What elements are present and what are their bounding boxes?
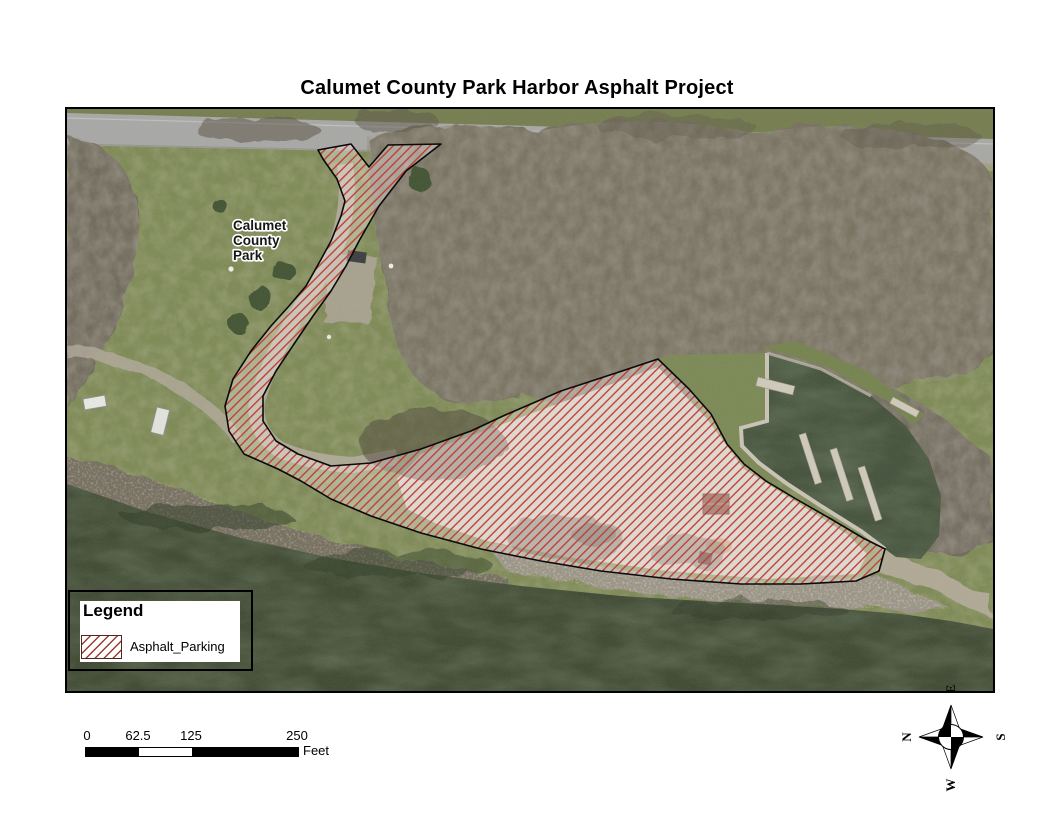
legend-item-label: Asphalt_Parking bbox=[130, 639, 225, 654]
scale-tick-125: 125 bbox=[180, 728, 202, 743]
svg-text:County: County bbox=[233, 233, 280, 248]
scale-bar: 0 62.5 125 250 Feet bbox=[85, 728, 345, 760]
svg-text:Park: Park bbox=[233, 248, 263, 263]
scale-tick-250: 250 bbox=[286, 728, 308, 743]
scale-bar-segments bbox=[85, 747, 299, 757]
compass-letter-n: N bbox=[899, 732, 914, 742]
legend-swatch-hatch bbox=[81, 635, 122, 659]
compass-letter-s: S bbox=[993, 733, 1007, 740]
scale-seg-black-1 bbox=[86, 748, 139, 756]
legend-title: Legend bbox=[83, 601, 143, 621]
compass-letter-w: W bbox=[943, 779, 958, 792]
svg-text:Calumet: Calumet bbox=[233, 218, 287, 233]
legend-item-asphalt-parking: Asphalt_Parking bbox=[81, 634, 225, 659]
scale-seg-white bbox=[139, 748, 192, 756]
scale-unit-label: Feet bbox=[303, 743, 329, 758]
north-arrow: N E S W bbox=[895, 677, 1007, 799]
legend: Legend Asphalt_Parking bbox=[68, 590, 253, 671]
compass-letter-e: E bbox=[943, 685, 958, 694]
map-document-page: Calumet County Park Harbor Asphalt Proje… bbox=[0, 0, 1056, 816]
scale-seg-black-2 bbox=[192, 748, 298, 756]
scale-tick-62-5: 62.5 bbox=[125, 728, 150, 743]
page-title: Calumet County Park Harbor Asphalt Proje… bbox=[0, 77, 1034, 100]
scale-tick-0: 0 bbox=[83, 728, 90, 743]
